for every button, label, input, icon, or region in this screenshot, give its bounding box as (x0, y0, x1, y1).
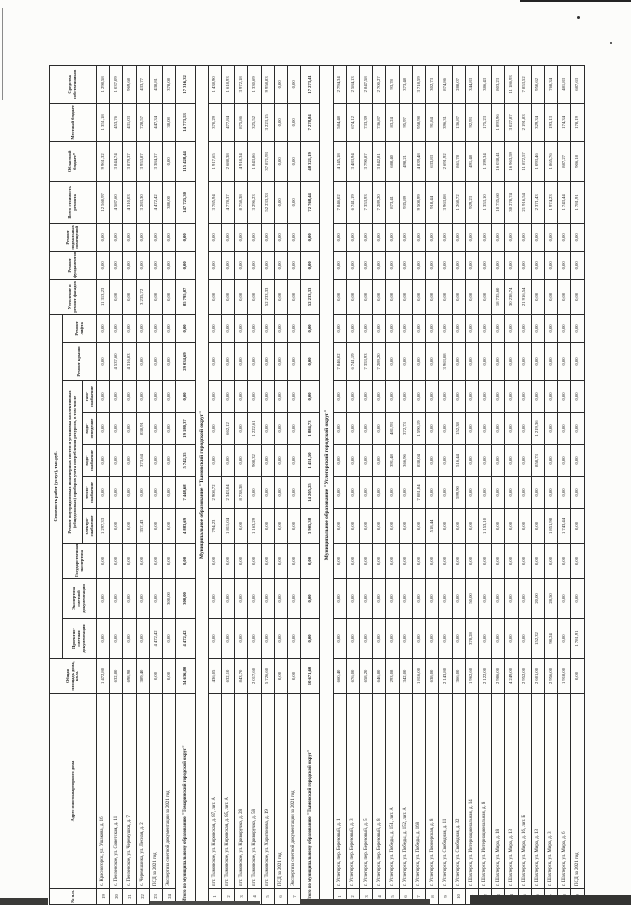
value-cell-roof: 0,00 (287, 343, 300, 381)
value-cell-lift: 0,00 (558, 314, 571, 342)
value-cell-exp: 0,00 (558, 579, 571, 619)
value-cell-lift: 0,00 (346, 314, 359, 342)
value-cell-base: 0,00 (248, 223, 261, 251)
total-value-cell-base: 0,00 (176, 223, 195, 251)
total-value-cell-own: 17 316,32 (176, 65, 195, 103)
value-cell-area: 1 962,60 (465, 659, 478, 694)
value-cell-roof: 0,00 (558, 343, 571, 381)
value-cell-roof: 0,00 (465, 343, 478, 381)
value-cell-el: 0,00 (123, 509, 136, 544)
value-cell-gas: 0,00 (208, 381, 221, 413)
value-cell-total: 7 353,93 (360, 181, 373, 223)
value-cell-psd: 378,28 (465, 619, 478, 659)
value-cell-el: 1 851,98 (544, 509, 557, 544)
value-cell-obl: 861,78 (452, 141, 465, 181)
value-cell-gas: 0,00 (531, 381, 544, 413)
total-value-cell-exp: 0,00 (301, 579, 320, 619)
value-cell-base: 0,00 (505, 223, 518, 251)
value-cell-obl: 0,00 (287, 141, 300, 181)
col-header-foundation: Ремонт фундаментов (50, 251, 97, 279)
value-cell-own: 7 853,52 (518, 65, 531, 103)
col-header-design-docs: Проектно-сметная документация (63, 619, 97, 659)
total-value-cell-lift: 0,00 (301, 314, 320, 342)
table-row: 9г. Углегорск, ул. Свободная, д. 112 143… (439, 65, 452, 904)
value-cell-lift: 0,00 (163, 314, 176, 342)
value-cell-total: 3 963,08 (439, 181, 452, 223)
total-value-cell-psd: 4 472,42 (176, 619, 195, 659)
value-cell-lift: 0,00 (274, 314, 287, 342)
table-row: 5г. Углегорск, ул. Победы, д. 151, лит. … (386, 65, 399, 904)
value-cell-total: 52 233,33 (261, 181, 274, 223)
value-cell-base: 0,00 (558, 223, 571, 251)
value-cell-mun: 453,76 (110, 103, 123, 141)
value-cell-area: 2 952,00 (518, 659, 531, 694)
value-cell-el: 0,00 (287, 509, 300, 544)
value-cell-psd: 0,00 (287, 619, 300, 659)
table-row: 6ПСД за 2021 год0,000,000,000,000,000,00… (274, 65, 287, 904)
value-cell-water: 0,00 (373, 445, 386, 477)
value-cell-water: 516,44 (452, 445, 465, 477)
value-cell-sewer: 372,73 (399, 413, 412, 445)
value-cell-gos: 0,00 (399, 544, 412, 579)
value-cell-heat: 0,00 (333, 477, 346, 509)
total-value-cell-psd: 0,00 (301, 619, 320, 659)
value-cell-gas: 0,00 (235, 381, 248, 413)
value-cell-sewer: 0,00 (478, 413, 491, 445)
value-cell-water: 0,00 (287, 445, 300, 477)
value-cell-gas: 0,00 (360, 381, 373, 413)
value-cell-area: 2 601,00 (531, 659, 544, 694)
value-cell-found: 0,00 (287, 251, 300, 279)
value-cell-roof: 0,00 (163, 343, 176, 381)
value-cell-facade: 0,00 (149, 279, 162, 314)
value-cell-obl: 4 918,34 (235, 141, 248, 181)
total-value-cell-exp: 300,00 (176, 579, 195, 619)
row-number-cell: 6 (274, 889, 287, 905)
value-cell-psd: 0,00 (333, 619, 346, 659)
value-cell-sewer: 0,00 (518, 413, 531, 445)
value-cell-water: 0,00 (439, 445, 452, 477)
value-cell-psd: 0,00 (558, 619, 571, 659)
value-cell-total: 935,89 (399, 181, 412, 223)
value-cell-sewer: 0,00 (346, 413, 359, 445)
value-cell-exp: 0,00 (136, 579, 149, 619)
value-cell-lift: 0,00 (518, 314, 531, 342)
value-cell-water: 0,00 (221, 445, 234, 477)
value-cell-gas: 0,00 (518, 381, 531, 413)
value-cell-mun: 0,00 (287, 103, 300, 141)
table-row: 22с. Черемшанка, ул. Лесная, д. 2389,400… (136, 65, 149, 904)
value-cell-roof: 0,00 (97, 343, 110, 381)
value-cell-area: 0,00 (274, 659, 287, 694)
value-cell-exp: 0,00 (333, 579, 346, 619)
value-cell-sewer: 0,00 (333, 413, 346, 445)
value-cell-sewer: 1 590,19 (412, 413, 425, 445)
value-cell-own: 344,83 (465, 65, 478, 103)
value-cell-lift: 0,00 (399, 314, 412, 342)
value-cell-obl: 37 871,93 (261, 141, 274, 181)
row-number-cell: 9 (439, 889, 452, 905)
address-cell: г. Шахтерск, ул. Интернациональная, д. 8 (478, 694, 491, 889)
value-cell-base: 0,00 (346, 223, 359, 251)
value-cell-roof: 4 537,60 (110, 343, 123, 381)
value-cell-facade: 0,00 (221, 279, 234, 314)
address-cell: г. Углегорск, ул. Победы, д. 152, лит. А (399, 694, 412, 889)
col-header-estimate-expertise: Экспертиза сметной документации (63, 579, 97, 619)
value-cell-psd: 0,00 (478, 619, 491, 659)
table-row: 21с. Пензенское, ул. Черемушки, д. 7698,… (123, 65, 136, 904)
address-cell: г. Шахтерск, ул. Мира, д. 13 (531, 694, 544, 889)
value-cell-base: 0,00 (235, 223, 248, 251)
value-cell-mun: 91,84 (426, 103, 439, 141)
table-row: 24Экспертиза сметной документации за 202… (163, 65, 176, 904)
value-cell-exp: 0,00 (346, 579, 359, 619)
value-cell-obl: 1 843,86 (248, 141, 261, 181)
table-row: 1г. Углегорск, пер. Березовый, д. 1660,4… (333, 65, 346, 904)
value-cell-base: 0,00 (439, 223, 452, 251)
value-cell-mun: 958,98 (412, 103, 425, 141)
value-cell-sewer: 0,00 (426, 413, 439, 445)
value-cell-mun: 733,39 (360, 103, 373, 141)
value-cell-found: 0,00 (492, 251, 505, 279)
value-cell-exp: 0,00 (221, 579, 234, 619)
address-cell: г. Шахтерск, ул. Мира, д. 18 (492, 694, 505, 889)
section-total-row: Итого по муниципальному образованию "Том… (176, 65, 195, 904)
value-cell-base: 0,00 (386, 223, 399, 251)
value-cell-mun: 370,29 (208, 103, 221, 141)
address-cell: г. Углегорск, пер. Березовый, д. 8 (373, 694, 386, 889)
value-cell-facade: 0,00 (235, 279, 248, 314)
value-cell-heat: 0,00 (386, 477, 399, 509)
total-value-cell-facade: 85 795,07 (176, 279, 195, 314)
address-cell: г. Углегорск, ул. Победы, д. 168 (412, 694, 425, 889)
value-cell-found: 0,00 (248, 251, 261, 279)
value-cell-water: 366,96 (399, 445, 412, 477)
table-row: 4пгт. Тымовское, ул. Криворучко, д. 582 … (248, 65, 261, 904)
value-cell-gas: 0,00 (274, 381, 287, 413)
value-cell-mun: 431,03 (123, 103, 136, 141)
value-cell-gos: 0,00 (123, 544, 136, 579)
total-value-cell-gos: 0,00 (176, 544, 195, 579)
value-cell-sewer: 0,00 (208, 413, 221, 445)
value-cell-obl: 0,00 (163, 141, 176, 181)
address-cell: Экспертиза сметной документации за 2021 … (163, 694, 176, 889)
value-cell-sewer: 838,91 (136, 413, 149, 445)
value-cell-exp: 0,00 (373, 579, 386, 619)
scan-edge-artifact (470, 895, 631, 905)
value-cell-obl: 1 865,76 (544, 141, 557, 181)
value-cell-obl: 16 963,59 (505, 141, 518, 181)
value-cell-roof: 0,00 (518, 343, 531, 381)
value-cell-sewer: 0,00 (235, 413, 248, 445)
value-cell-base: 0,00 (149, 223, 162, 251)
address-cell: г. Шахтерск, ул. Мира, д. 3 (544, 694, 557, 889)
total-value-cell-roof: 0,00 (301, 343, 320, 381)
value-cell-own: 288,07 (452, 65, 465, 103)
value-cell-psd: 1 781,91 (571, 619, 585, 659)
value-cell-gos: 0,00 (235, 544, 248, 579)
value-cell-water: 0,00 (110, 445, 123, 477)
value-cell-base: 0,00 (465, 223, 478, 251)
value-cell-lift: 0,00 (531, 314, 544, 342)
table-row: 11г. Шахтерск, ул. Интернациональная, д.… (465, 65, 478, 904)
value-cell-gas: 0,00 (492, 381, 505, 413)
value-cell-base: 0,00 (531, 223, 544, 251)
value-cell-exp: 0,00 (235, 579, 248, 619)
value-cell-area: 2 017,60 (248, 659, 261, 694)
value-cell-psd: 0,00 (492, 619, 505, 659)
value-cell-heat: 0,00 (426, 477, 439, 509)
address-cell: г. Углегорск, пер. Березовый, д. 5 (360, 694, 373, 889)
value-cell-mun: 447,34 (149, 103, 162, 141)
value-cell-area: 676,00 (346, 659, 359, 694)
value-cell-psd: 152,32 (531, 619, 544, 659)
value-cell-water: 0,00 (123, 445, 136, 477)
value-cell-facade: 0,00 (163, 279, 176, 314)
value-cell-heat: 0,00 (544, 477, 557, 509)
value-cell-obl: 906,18 (571, 141, 585, 181)
value-cell-own: 1 618,93 (221, 65, 234, 103)
value-cell-exp: 0,00 (439, 579, 452, 619)
total-value-cell-base: 0,00 (301, 223, 320, 251)
value-cell-base: 0,00 (221, 223, 234, 251)
address-cell: г. Шахтерск, ул. Мира, д. 16, лит. Б (518, 694, 531, 889)
value-cell-roof: 0,00 (544, 343, 557, 381)
value-cell-total: 1 781,91 (571, 181, 585, 223)
value-cell-psd: 0,00 (274, 619, 287, 659)
value-cell-gas: 0,00 (373, 381, 386, 413)
value-cell-heat: 0,00 (399, 477, 412, 509)
value-cell-gas: 0,00 (248, 381, 261, 413)
value-cell-heat: 0,00 (492, 477, 505, 509)
value-cell-area: 436,05 (208, 659, 221, 694)
value-cell-el: 0,00 (386, 509, 399, 544)
value-cell-total: 3 283,30 (136, 181, 149, 223)
value-cell-gos: 0,00 (346, 544, 359, 579)
col-header-basement: Ремонт подвальных помещений (50, 223, 97, 251)
value-cell-own: 3 718,59 (412, 65, 425, 103)
value-cell-total: 918,44 (426, 181, 439, 223)
value-cell-sewer: 0,00 (123, 413, 136, 445)
value-cell-total: 9 508,99 (412, 181, 425, 223)
value-cell-total: 1 974,23 (544, 181, 557, 223)
value-cell-el: 1 297,33 (97, 509, 110, 544)
value-cell-gas: 0,00 (110, 381, 123, 413)
value-cell-sewer: 0,00 (544, 413, 557, 445)
value-cell-own: 1 330,69 (248, 65, 261, 103)
value-cell-lift: 0,00 (571, 314, 585, 342)
value-cell-own: 3 972,18 (235, 65, 248, 103)
value-cell-gos: 0,00 (558, 544, 571, 579)
value-cell-total: 18 735,60 (492, 181, 505, 223)
value-cell-mun: 38,08 (163, 103, 176, 141)
value-cell-heat: 0,00 (274, 477, 287, 509)
value-cell-base: 0,00 (399, 223, 412, 251)
value-cell-heat: 0,00 (261, 477, 274, 509)
value-cell-mun: 174,34 (558, 103, 571, 141)
value-cell-gas: 0,00 (123, 381, 136, 413)
value-cell-roof: 0,00 (452, 343, 465, 381)
col-header-gas: газо-снабжение (83, 381, 97, 413)
section-header-row: Муниципальное образование "Тымовский гор… (195, 65, 208, 904)
address-cell: г. Шахтерск, ул. Интернациональная, д. 1… (465, 694, 478, 889)
value-cell-lift: 0,00 (412, 314, 425, 342)
value-cell-own: 481,83 (558, 65, 571, 103)
address-cell: г. Шахтерск, ул. Мира, д. 13 (505, 694, 518, 889)
value-cell-gas: 0,00 (505, 381, 518, 413)
value-cell-gos: 0,00 (110, 544, 123, 579)
table-row: 8г. Углегорск, ул. Пионерская, д. 8638,0… (426, 65, 439, 904)
value-cell-el: 1 811,04 (221, 509, 234, 544)
value-cell-area: 2 986,00 (492, 659, 505, 694)
value-cell-psd: 0,00 (426, 619, 439, 659)
value-cell-sewer: 481,93 (386, 413, 399, 445)
value-cell-obl: 1 199,34 (478, 141, 491, 181)
value-cell-lift: 0,00 (149, 314, 162, 342)
value-cell-base: 0,00 (452, 223, 465, 251)
value-cell-water: 0,00 (518, 445, 531, 477)
value-cell-area: 660,40 (333, 659, 346, 694)
value-cell-mun: 95,97 (399, 103, 412, 141)
address-cell: ПСД за 2021 год (149, 694, 162, 889)
value-cell-found: 0,00 (465, 251, 478, 279)
value-cell-lift: 0,00 (386, 314, 399, 342)
value-cell-own: 1 438,90 (208, 65, 221, 103)
value-cell-heat: 0,00 (360, 477, 373, 509)
value-cell-psd: 0,00 (235, 619, 248, 659)
value-cell-lift: 0,00 (208, 314, 221, 342)
value-cell-roof: 0,00 (399, 343, 412, 381)
value-cell-lift: 0,00 (136, 314, 149, 342)
value-cell-el: 1 153,10 (478, 509, 491, 544)
col-header-area: Общая площадь дома, кв.м. (50, 659, 97, 694)
value-cell-roof: 0,00 (235, 343, 248, 381)
value-cell-area: 2 143,80 (439, 659, 452, 694)
value-cell-own: 93,78 (386, 65, 399, 103)
value-cell-roof: 7 289,20 (373, 343, 386, 381)
value-cell-lift: 0,00 (452, 314, 465, 342)
value-cell-psd: 0,00 (110, 619, 123, 659)
value-cell-roof: 0,00 (386, 343, 399, 381)
table-row: 6г. Углегорск, ул. Победы, д. 152, лит. … (399, 65, 412, 904)
value-cell-gos: 0,00 (439, 544, 452, 579)
col-header-address: Адрес многоквартирного дома (50, 694, 97, 889)
section-header-label: Муниципальное образование "Тымовский гор… (195, 65, 208, 904)
value-cell-el: 0,00 (274, 509, 287, 544)
value-cell-exp: 0,00 (287, 579, 300, 619)
value-cell-own: 373,48 (399, 65, 412, 103)
address-cell: с. Пензенское, ул. Советская, д. 11 (110, 694, 123, 889)
value-cell-total: 1 743,44 (558, 181, 571, 223)
value-cell-obl: 11 872,57 (518, 141, 531, 181)
value-cell-obl: 633,83 (426, 141, 439, 181)
value-cell-heat: 0,00 (478, 477, 491, 509)
value-cell-gas: 0,00 (571, 381, 585, 413)
value-cell-water: 0,00 (426, 445, 439, 477)
value-cell-area: 1 918,00 (558, 659, 571, 694)
value-cell-roof: 7 353,93 (360, 343, 373, 381)
value-cell-total: 3 296,23 (248, 181, 261, 223)
value-cell-water: 908,32 (248, 445, 261, 477)
value-cell-gos: 0,00 (163, 544, 176, 579)
value-cell-total: 3 785,94 (208, 181, 221, 223)
table-row: 7Экспертиза сметной документации за 2021… (287, 65, 300, 904)
value-cell-facade: 0,00 (465, 279, 478, 314)
total-value-cell-own: 17 273,41 (301, 65, 320, 103)
value-cell-heat: 2 343,04 (221, 477, 234, 509)
value-cell-water: 0,00 (346, 445, 359, 477)
total-value-cell-sewer: 19 180,37 (176, 413, 195, 445)
value-cell-found: 0,00 (399, 251, 412, 279)
value-cell-roof: 0,00 (505, 343, 518, 381)
value-cell-el: 0,00 (110, 509, 123, 544)
value-cell-exp: 0,00 (518, 579, 531, 619)
value-cell-facade: 0,00 (531, 279, 544, 314)
value-cell-facade: 0,00 (287, 279, 300, 314)
value-cell-el: 357,43 (136, 509, 149, 544)
value-cell-obl: 3 879,37 (123, 141, 136, 181)
value-cell-lift: 0,00 (221, 314, 234, 342)
value-cell-gos: 0,00 (412, 544, 425, 579)
address-cell: пгт. Тымовское, ул. Криворучко, д. 58 (248, 694, 261, 889)
value-cell-gos: 0,00 (97, 544, 110, 579)
value-cell-exp: 0,00 (261, 579, 274, 619)
value-cell-psd: 4 472,42 (149, 619, 162, 659)
value-cell-lift: 0,00 (505, 314, 518, 342)
value-cell-gos: 0,00 (248, 544, 261, 579)
value-cell-lift: 0,00 (333, 314, 346, 342)
value-cell-gos: 0,00 (531, 544, 544, 579)
value-cell-facade: 0,00 (386, 279, 399, 314)
value-cell-psd: 0,00 (386, 619, 399, 659)
table-row: 19ПСД за 2021 год0,001 781,910,000,000,0… (571, 65, 585, 904)
value-cell-obl: 16 038,41 (492, 141, 505, 181)
value-cell-exp: 0,00 (386, 579, 399, 619)
value-cell-found: 0,00 (149, 251, 162, 279)
value-cell-water: 0,00 (571, 445, 585, 477)
value-cell-el: 1 743,44 (558, 509, 571, 544)
value-cell-lift: 0,00 (110, 314, 123, 342)
value-cell-exp: 0,00 (399, 579, 412, 619)
value-cell-total: 380,00 (163, 181, 176, 223)
value-cell-obl: 4 839,48 (412, 141, 425, 181)
table-row: 13г. Шахтерск, ул. Мира, д. 182 986,000,… (492, 65, 505, 904)
value-cell-exp: 0,00 (208, 579, 221, 619)
value-cell-el: 0,00 (163, 509, 176, 544)
value-cell-own: 0,00 (274, 65, 287, 103)
value-cell-heat: 0,00 (287, 477, 300, 509)
value-cell-heat: 0,00 (465, 477, 478, 509)
value-cell-base: 0,00 (287, 223, 300, 251)
value-cell-found: 0,00 (412, 251, 425, 279)
value-cell-total: 1 268,72 (452, 181, 465, 223)
value-cell-heat: 0,00 (136, 477, 149, 509)
value-cell-mun: 0,00 (274, 103, 287, 141)
value-cell-own: 302,73 (426, 65, 439, 103)
value-cell-found: 0,00 (518, 251, 531, 279)
value-cell-obl: 1 917,65 (208, 141, 221, 181)
value-cell-total: 2 371,43 (531, 181, 544, 223)
address-cell: пгт. Тымовское, ул. Кировская, д. 85, ли… (221, 694, 234, 889)
value-cell-own: 768,34 (544, 65, 557, 103)
value-cell-gas: 0,00 (478, 381, 491, 413)
value-cell-found: 0,00 (439, 251, 452, 279)
value-cell-facade: 0,00 (360, 279, 373, 314)
total-value-cell-water: 5 742,35 (176, 445, 195, 477)
total-value-cell-water: 1 451,50 (301, 445, 320, 477)
value-cell-lift: 0,00 (492, 314, 505, 342)
col-header-electricity: электро-снабжение (83, 509, 97, 544)
